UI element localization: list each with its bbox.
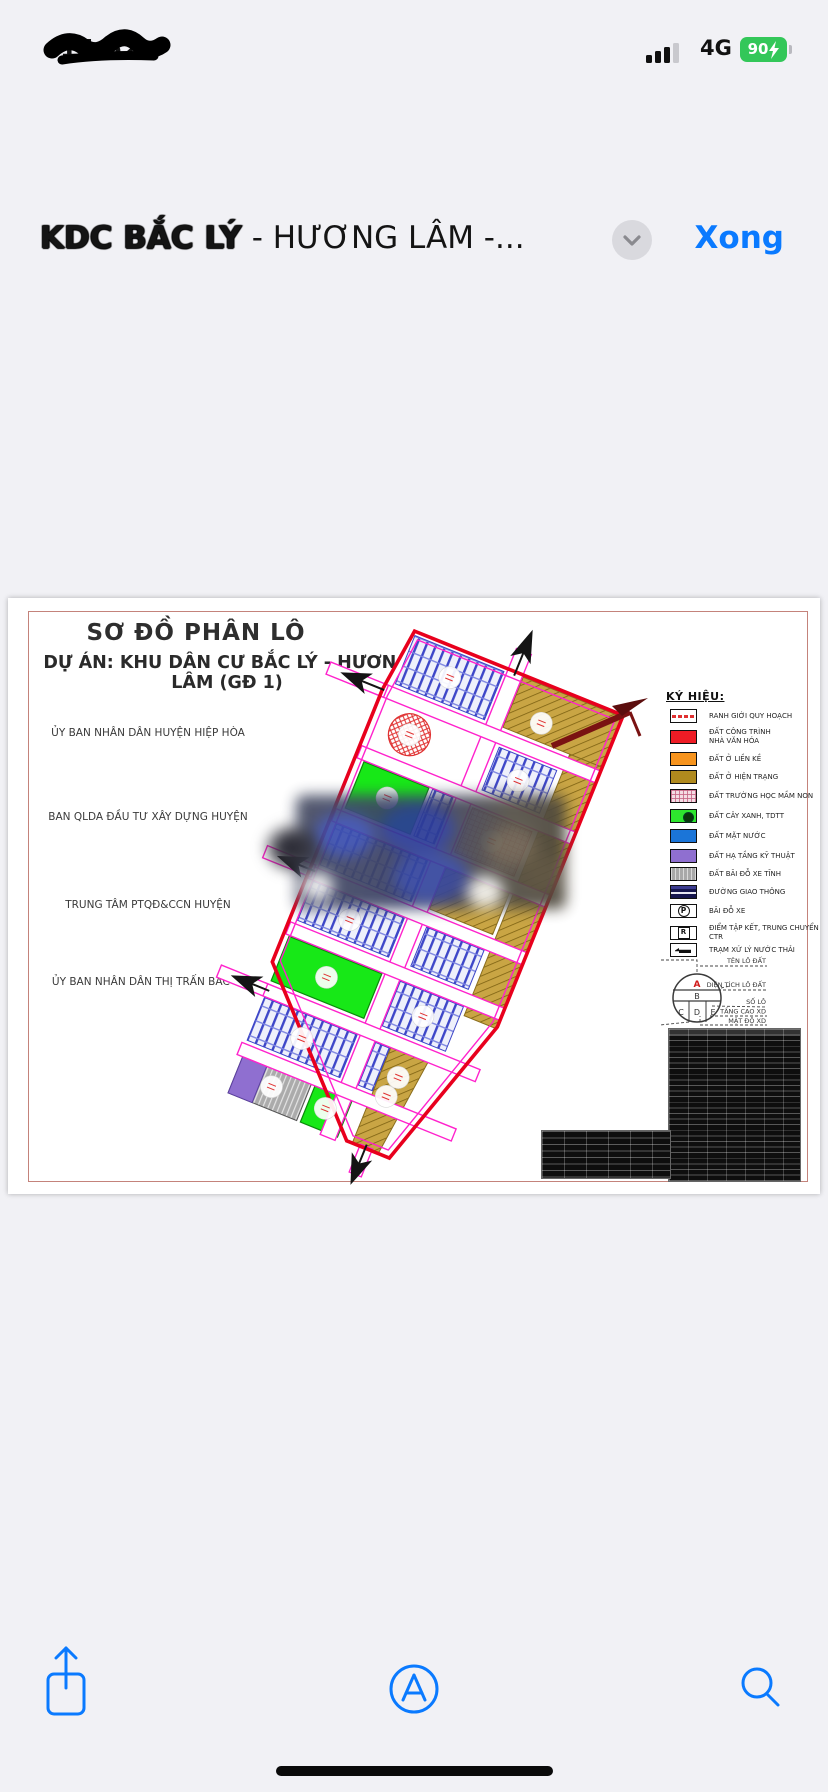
cell-a: A: [694, 980, 701, 990]
blurred-watermark-blob: [262, 822, 322, 874]
blurred-watermark: [296, 795, 566, 909]
share-button[interactable]: [48, 1648, 84, 1714]
callout-lot-area: DIỆN TÍCH LÔ ĐẤT: [707, 979, 766, 989]
callout-lot-number: SỐ LÔ: [746, 996, 766, 1006]
markup-button[interactable]: [391, 1666, 437, 1712]
bottom-toolbar: [0, 1630, 828, 1750]
cell-b: B: [694, 992, 700, 1001]
callout-lot-name: TÊN LÔ ĐẤT: [726, 955, 766, 965]
search-button[interactable]: [743, 1669, 778, 1705]
cell-c: C: [678, 1008, 684, 1017]
lot-symbol-key: A B C D E TÊN LÔ ĐẤT DIỆN TÍCH LÔ ĐẤT SỐ…: [660, 955, 767, 1025]
callout-floors: TẦNG CAO XD: [719, 1006, 766, 1016]
callout-density: MẬT ĐỘ XD: [728, 1016, 766, 1025]
cell-d: D: [694, 1008, 700, 1017]
home-indicator[interactable]: [276, 1766, 553, 1776]
